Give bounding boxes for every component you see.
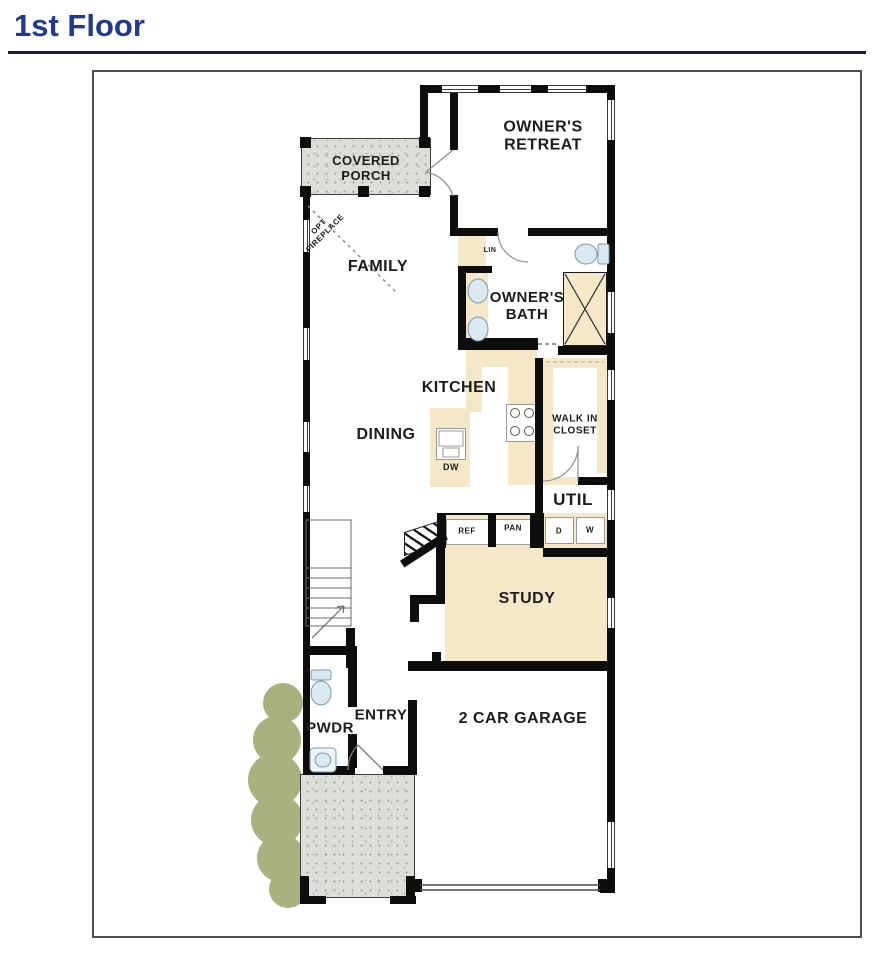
wall-segment bbox=[303, 360, 310, 422]
wall-segment bbox=[543, 548, 615, 557]
wall-segment bbox=[531, 85, 548, 93]
window-icon bbox=[500, 85, 531, 93]
window-icon bbox=[607, 822, 615, 868]
wall-segment bbox=[478, 85, 500, 93]
label-ref: REF bbox=[458, 526, 476, 535]
wall-segment bbox=[488, 513, 496, 547]
room-label-owners-retreat: OWNER'S RETREAT bbox=[503, 119, 582, 156]
room-label-family: FAMILY bbox=[348, 258, 408, 276]
room-label-kitchen: KITCHEN bbox=[422, 379, 497, 397]
closet-door-floor bbox=[543, 477, 578, 485]
wall-segment bbox=[458, 338, 538, 350]
wall-segment bbox=[383, 766, 417, 775]
wall-segment bbox=[607, 520, 615, 598]
dishwasher bbox=[436, 428, 466, 460]
wall-segment bbox=[408, 700, 417, 770]
label-dryer: D bbox=[556, 526, 562, 535]
window-icon bbox=[607, 292, 615, 333]
wall-segment bbox=[346, 628, 355, 668]
floorplan-page: 1st Floor bbox=[0, 0, 874, 954]
label-pan: PAN bbox=[504, 523, 522, 532]
title-divider bbox=[8, 51, 866, 54]
wall-segment bbox=[558, 346, 607, 355]
window-icon bbox=[303, 422, 310, 452]
window-icon bbox=[607, 598, 615, 628]
room-label-study: STUDY bbox=[499, 590, 556, 608]
window-icon bbox=[548, 85, 586, 93]
window-icon bbox=[303, 328, 310, 360]
porch-post bbox=[390, 896, 416, 904]
window-icon bbox=[607, 490, 615, 520]
wall-segment bbox=[450, 93, 458, 150]
window-icon bbox=[442, 85, 478, 93]
wall-segment bbox=[303, 196, 310, 220]
porch-post bbox=[358, 186, 369, 197]
wall-segment bbox=[528, 228, 615, 236]
floorplan-border bbox=[92, 70, 862, 938]
label-washer: W bbox=[586, 525, 594, 534]
wall-segment bbox=[578, 477, 615, 485]
wall-segment bbox=[450, 228, 498, 236]
page-title: 1st Floor bbox=[14, 8, 145, 44]
window-icon bbox=[303, 486, 310, 512]
wall-segment bbox=[303, 452, 310, 486]
shower-fill bbox=[563, 272, 607, 346]
room-label-garage: 2 CAR GARAGE bbox=[459, 710, 588, 728]
window-icon bbox=[607, 370, 615, 400]
wall-segment bbox=[607, 333, 615, 370]
porch-post bbox=[419, 137, 430, 148]
porch-post bbox=[419, 186, 430, 197]
front-porch bbox=[300, 774, 415, 898]
wall-segment bbox=[530, 513, 544, 548]
wall-segment bbox=[600, 886, 615, 893]
room-label-util: UTIL bbox=[553, 490, 593, 510]
label-dw: DW bbox=[443, 462, 459, 472]
wall-segment bbox=[586, 85, 615, 93]
wall-segment bbox=[535, 485, 543, 513]
room-label-entry: ENTRY bbox=[355, 706, 408, 723]
label-lin: LIN bbox=[484, 247, 497, 255]
wall-segment bbox=[607, 140, 615, 292]
cooktop bbox=[506, 404, 537, 442]
room-label-dining: DINING bbox=[357, 426, 416, 444]
closet-shelf-right bbox=[597, 368, 607, 473]
wall-segment bbox=[420, 85, 428, 141]
room-label-owners-bath: OWNER'S BATH bbox=[490, 289, 565, 324]
closet-shelf-top bbox=[543, 358, 607, 368]
wall-segment bbox=[607, 628, 615, 822]
wall-segment bbox=[607, 93, 615, 100]
wall-segment bbox=[535, 358, 543, 485]
window-icon bbox=[607, 100, 615, 140]
lin-closet-fill bbox=[458, 236, 486, 266]
room-label-pwdr: PWDR bbox=[306, 719, 354, 736]
wall-segment bbox=[410, 595, 419, 622]
wall-segment bbox=[348, 734, 357, 768]
wall-segment bbox=[303, 252, 310, 328]
porch-post bbox=[300, 137, 311, 148]
room-label-covered-porch: COVERED PORCH bbox=[332, 154, 400, 184]
room-label-walk-in-closet: WALK IN CLOSET bbox=[552, 414, 598, 437]
wall-segment bbox=[408, 661, 615, 671]
porch-post bbox=[300, 896, 326, 904]
